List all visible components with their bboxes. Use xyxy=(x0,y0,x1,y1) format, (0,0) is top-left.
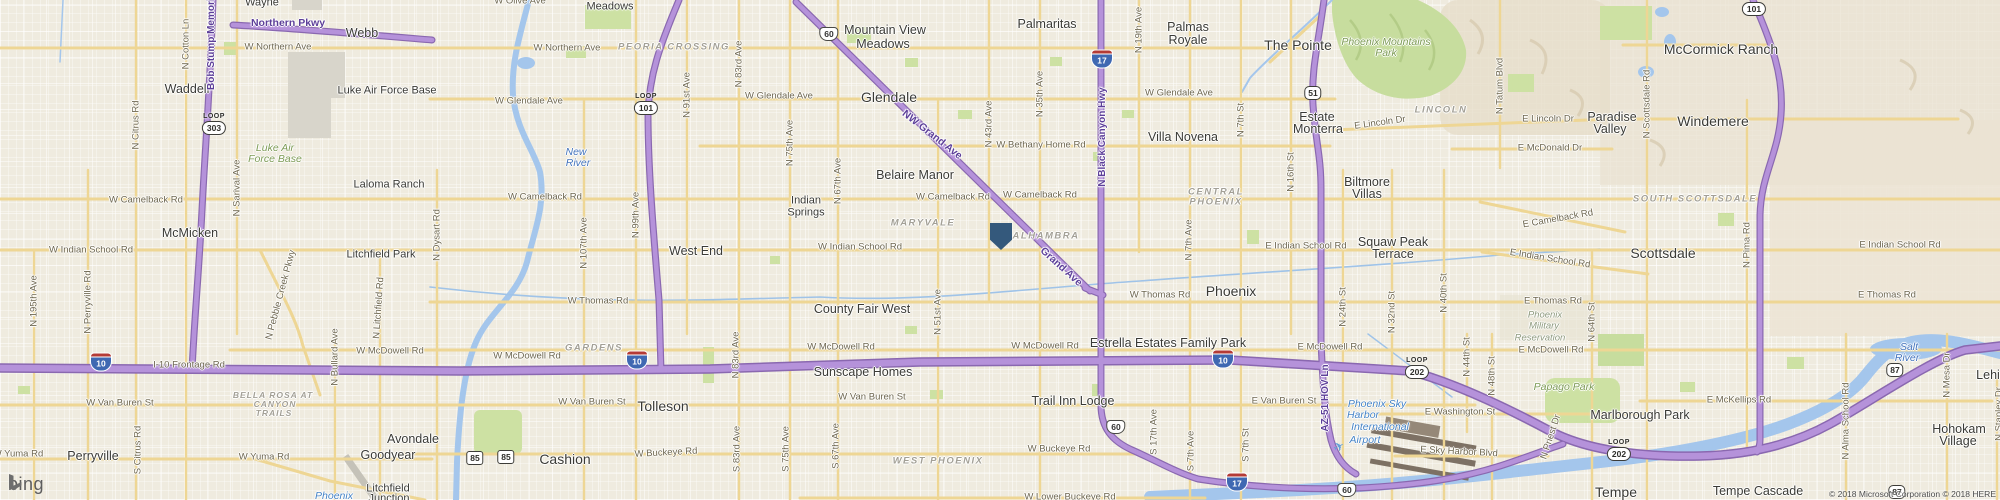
label-trail-inn-lodge: Trail Inn Lodge xyxy=(1032,395,1115,408)
label-luke-air-force-base: Luke Air Force Base xyxy=(337,86,436,97)
shield-i-10: 10 xyxy=(627,352,647,369)
label-military: Military xyxy=(1529,321,1559,331)
label-northern-pkwy: Northern Pkwy xyxy=(251,18,325,29)
label-w-indian-school-rd: W Indian School Rd xyxy=(49,245,133,255)
label-scottsdale: Scottsdale xyxy=(1630,246,1695,260)
label-phoenix-mountains: Phoenix Mountains xyxy=(1341,37,1430,48)
label-w-camelback-rd: W Camelback Rd xyxy=(1003,190,1077,200)
loop-shield-number: 101 xyxy=(1742,2,1766,16)
label-w-olive-ave: W Olive Ave xyxy=(494,0,546,6)
label-meadows: Meadows xyxy=(856,38,910,51)
label-s-7th-st: S 7th St xyxy=(1241,428,1251,462)
label-n-alma-school-rd: N Alma School Rd xyxy=(1841,382,1851,459)
label-e-indian-school-rd: E Indian School Rd xyxy=(1265,241,1346,251)
label-w-yuma-rd: W Yuma Rd xyxy=(239,452,290,462)
label-mountain-view: Mountain View xyxy=(844,24,926,37)
label-mccormick-ranch: McCormick Ranch xyxy=(1664,42,1778,56)
label-w-northern-ave: W Northern Ave xyxy=(534,43,601,53)
loop-shield-number: 202 xyxy=(1607,447,1631,461)
label-wayne: Wayne xyxy=(245,0,279,9)
label-n-48th-st: N 48th St xyxy=(1487,356,1497,396)
label-n-32nd-st: N 32nd St xyxy=(1387,291,1397,333)
label-junction: Junction xyxy=(369,494,410,500)
label-n-195th-ave: N 195th Ave xyxy=(29,275,39,327)
label-alhambra: ALHAMBRA xyxy=(1013,231,1080,241)
label-e-washington-st: E Washington St xyxy=(1425,407,1495,417)
label-n-75th-ave: N 75th Ave xyxy=(785,120,795,166)
label-e-van-buren-st: E Van Buren St xyxy=(1252,396,1317,406)
label-e-mckellips-rd: E McKellips Rd xyxy=(1707,395,1771,405)
label-n-tatum-blvd: N Tatum Blvd xyxy=(1495,58,1505,114)
label-n-107th-ave: N 107th Ave xyxy=(579,217,589,269)
map-attribution: © 2018 Microsoft Corporation © 2018 HERE xyxy=(1829,489,1996,499)
loop-shield-word: LOOP xyxy=(634,93,658,100)
shield-sr85-85: 85 xyxy=(466,451,483,465)
shield-loop-101: LOOP101 xyxy=(1742,0,1766,16)
label-n-19th-ave: N 19th Ave xyxy=(1134,7,1144,53)
label-n-64th-st: N 64th St xyxy=(1587,302,1597,342)
interstate-shield-number: 17 xyxy=(1227,478,1247,491)
label-airport: Airport xyxy=(1350,435,1381,446)
label-waddell: Waddell xyxy=(165,83,210,96)
bing-logo-icon xyxy=(8,474,23,493)
loop-shield-word: LOOP xyxy=(1607,439,1631,446)
label-river: River xyxy=(566,158,591,169)
label-n-7th-st: N 7th St xyxy=(1236,103,1246,137)
label-river: River xyxy=(1895,353,1920,364)
label-new: New xyxy=(565,147,586,158)
label-w-northern-ave: W Northern Ave xyxy=(245,42,312,52)
label-n-40th-st: N 40th St xyxy=(1439,273,1449,313)
shield-loop-101: LOOP101 xyxy=(634,93,658,115)
label-luke-air: Luke Air xyxy=(256,143,294,154)
label-w-mcdowell-rd: W McDowell Rd xyxy=(493,351,561,361)
label-w-van-buren-st: W Van Buren St xyxy=(838,392,905,402)
label-e-mcdowell-rd: E McDowell Rd xyxy=(1519,345,1584,355)
label-gardens: GARDENS xyxy=(565,343,623,353)
label-belaire-manor: Belaire Manor xyxy=(876,169,954,182)
label-the-pointe: The Pointe xyxy=(1264,38,1332,52)
label-windemere: Windemere xyxy=(1677,114,1749,128)
loop-shield-word: LOOP xyxy=(202,113,226,120)
label-w-van-buren-st: W Van Buren St xyxy=(558,397,625,407)
label-w-van-buren-st: W Van Buren St xyxy=(86,398,153,408)
bing-logo[interactable]: bing xyxy=(8,474,44,495)
label-w-camelback-rd: W Camelback Rd xyxy=(109,195,183,205)
label-n-black-canyon-hwy: N Black Canyon Hwy xyxy=(1098,87,1108,186)
label-w-yuma-rd: W Yuma Rd xyxy=(0,449,43,459)
interstate-shield-number: 10 xyxy=(91,358,111,371)
label-n-perryville-rd: N Perryville Rd xyxy=(83,270,93,333)
label-i-10-frontage-rd: I-10 Frontage Rd xyxy=(153,360,225,370)
label-n-cotton-ln: N Cotton Ln xyxy=(181,19,191,70)
interstate-shield-number: 17 xyxy=(1092,55,1112,68)
label-indian: Indian xyxy=(791,196,821,207)
label-phoenix: Phoenix xyxy=(315,491,353,500)
label-w-glendale-ave: W Glendale Ave xyxy=(745,91,813,101)
shield-i-10: 10 xyxy=(1213,351,1233,368)
label-n-citrus-rd: N Citrus Rd xyxy=(131,100,141,149)
label-w-mcdowell-rd: W McDowell Rd xyxy=(1011,341,1079,351)
label-n-51st-ave: N 51st Ave xyxy=(933,289,943,335)
label-perryville: Perryville xyxy=(67,450,118,463)
label-phoenix-sky: Phoenix Sky xyxy=(1348,399,1406,410)
label-w-mcdowell-rd: W McDowell Rd xyxy=(807,342,875,352)
label-lehi: Lehi xyxy=(1976,369,2000,382)
label-w-buckeye-rd: W Buckeye Rd xyxy=(1028,444,1091,454)
label-phoenix: Phoenix xyxy=(1206,284,1257,298)
label-s-17th-ave: S 17th Ave xyxy=(1149,409,1159,455)
label-s-citrus-rd: S Citrus Rd xyxy=(133,426,143,475)
label-cashion: Cashion xyxy=(539,452,590,466)
label-phoenix: Phoenix xyxy=(1528,310,1562,320)
shield-i-10: 10 xyxy=(91,354,111,371)
label-goodyear: Goodyear xyxy=(361,449,416,462)
label-west-phoenix: WEST PHOENIX xyxy=(893,456,984,466)
shield-i-17: 17 xyxy=(1227,474,1247,491)
label-tolleson: Tolleson xyxy=(637,399,688,413)
label-w-thomas-rd: W Thomas Rd xyxy=(1130,290,1191,300)
label-w-bethany-home-rd: W Bethany Home Rd xyxy=(996,140,1085,150)
label-trails: TRAILS xyxy=(256,409,293,418)
label-n-83rd-ave: N 83rd Ave xyxy=(731,332,741,379)
label-springs: Springs xyxy=(787,208,824,219)
label-royale: Royale xyxy=(1169,34,1208,47)
label-n-35th-ave: N 35th Ave xyxy=(1035,71,1045,117)
loop-shield-number: 303 xyxy=(202,121,226,135)
label-e-mcdonald-dr: E McDonald Dr xyxy=(1518,143,1582,153)
label-papago-park: Papago Park xyxy=(1534,382,1595,393)
label-e-mcdowell-rd: E McDowell Rd xyxy=(1298,342,1363,352)
label-n-91st-ave: N 91st Ave xyxy=(682,72,692,118)
label-sunscape-homes: Sunscape Homes xyxy=(814,366,913,379)
label-salt: Salt xyxy=(1900,342,1918,353)
label-w-lower-buckeye-rd: W Lower Buckeye Rd xyxy=(1024,492,1115,500)
label-n-mesa-dr: N Mesa Dr xyxy=(1942,352,1952,397)
label-w-camelback-rd: W Camelback Rd xyxy=(508,192,582,202)
label-international: International xyxy=(1351,422,1409,433)
label-reservation: Reservation xyxy=(1515,333,1566,343)
label-s-83rd-ave: S 83rd Ave xyxy=(732,426,742,472)
label-s-7th-ave: S 7th Ave xyxy=(1186,431,1196,472)
label-w-camelback-rd: W Camelback Rd xyxy=(916,192,990,202)
label-bob-stump-memorial: Bob Stump Memorial xyxy=(207,0,217,90)
label-e-thomas-rd: E Thomas Rd xyxy=(1858,290,1916,300)
label-s-75th-ave: S 75th Ave xyxy=(781,426,791,472)
label-meadows: Meadows xyxy=(586,2,633,13)
label-phoenix: PHOENIX xyxy=(1189,197,1242,207)
label-valley: Valley xyxy=(1593,123,1626,136)
label-w-indian-school-rd: W Indian School Rd xyxy=(818,242,902,252)
label-n-83rd-ave: N 83rd Ave xyxy=(734,41,744,88)
map-vector-layer xyxy=(0,0,2000,500)
label-harbor: Harbor xyxy=(1347,410,1379,421)
label-e-thomas-rd: E Thomas Rd xyxy=(1524,296,1582,306)
loop-shield-word: LOOP xyxy=(1405,357,1429,364)
label-e-indian-school-rd: E Indian School Rd xyxy=(1859,240,1940,250)
label-w-mcdowell-rd: W McDowell Rd xyxy=(356,346,424,356)
map-canvas[interactable]: WayneNorthern PkwyWebbW Northern AveW Ol… xyxy=(0,0,2000,500)
label-palmaritas: Palmaritas xyxy=(1017,18,1076,31)
label-tempe: Tempe xyxy=(1595,485,1637,499)
label-county-fair-west: County Fair West xyxy=(814,303,910,316)
label-az-51-hov-ln: AZ-51 HOV Ln xyxy=(1321,364,1331,431)
label-park: Park xyxy=(1375,48,1397,59)
label-n-67th-ave: N 67th Ave xyxy=(833,158,843,204)
label-villa-novena: Villa Novena xyxy=(1148,131,1218,144)
label-glendale: Glendale xyxy=(861,90,917,104)
shield-sr-51: 51 xyxy=(1304,86,1321,100)
label-mcmicken: McMicken xyxy=(162,227,218,240)
label-west-end: West End xyxy=(669,245,723,258)
label-n-bullard-ave: N Bullard Ave xyxy=(330,328,340,385)
label-force-base: Force Base xyxy=(248,154,302,165)
label-south-scottsdale: SOUTH SCOTTSDALE xyxy=(1633,194,1757,204)
interstate-shield-number: 10 xyxy=(627,356,647,369)
label-w-glendale-ave: W Glendale Ave xyxy=(495,96,563,106)
label-e-lincoln-dr: E Lincoln Dr xyxy=(1522,114,1574,124)
label-webb: Webb xyxy=(346,27,378,40)
label-monterra: Monterra xyxy=(1293,123,1343,136)
label-n-scottsdale-rd: N Scottsdale Rd xyxy=(1642,70,1652,139)
interstate-shield-number: 10 xyxy=(1213,355,1233,368)
label-n-24th-st: N 24th St xyxy=(1338,287,1348,327)
label-n-dysart-rd: N Dysart Rd xyxy=(432,209,442,261)
label-marlborough-park: Marlborough Park xyxy=(1590,409,1689,422)
shield-loop-303: LOOP303 xyxy=(202,113,226,135)
loop-shield-word: LOOP xyxy=(1742,0,1766,1)
label-estrella-estates-family-park: Estrella Estates Family Park xyxy=(1090,337,1246,350)
loop-shield-number: 101 xyxy=(634,101,658,115)
label-n-44th-st: N 44th St xyxy=(1462,337,1472,377)
label-laloma-ranch: Laloma Ranch xyxy=(354,180,425,191)
label-litchfield-park: Litchfield Park xyxy=(346,250,415,261)
label-palmas: Palmas xyxy=(1167,21,1209,34)
shield-i-17: 17 xyxy=(1092,51,1112,68)
label-n-sarival-ave: N Sarival Ave xyxy=(232,160,242,217)
label-peoria-crossing: PEORIA CROSSING xyxy=(618,42,730,52)
shield-sr-87: 87 xyxy=(1886,363,1903,377)
label-lincoln: LINCOLN xyxy=(1415,105,1468,115)
label-n-43rd-ave: N 43rd Ave xyxy=(984,101,994,148)
label-tempe-cascade: Tempe Cascade xyxy=(1713,485,1803,498)
label-n-7th-ave: N 7th Ave xyxy=(1184,219,1194,260)
label-avondale: Avondale xyxy=(387,433,439,446)
loop-shield-number: 202 xyxy=(1405,365,1429,379)
label-villas: Villas xyxy=(1352,188,1382,201)
label-maryvale: MARYVALE xyxy=(891,218,955,228)
label-n-16th-st: N 16th St xyxy=(1286,152,1296,192)
shield-loop-202: LOOP202 xyxy=(1405,357,1429,379)
label-w-thomas-rd: W Thomas Rd xyxy=(568,296,629,306)
label-n-pima-rd: N Pima Rd xyxy=(1742,222,1752,268)
label-terrace: Terrace xyxy=(1372,248,1414,261)
shield-loop-202: LOOP202 xyxy=(1607,439,1631,461)
label-village: Village xyxy=(1939,435,1976,448)
label-s-67th-ave: S 67th Ave xyxy=(831,423,841,469)
label-w-glendale-ave: W Glendale Ave xyxy=(1145,88,1213,98)
shield-sr85-85: 85 xyxy=(497,450,514,464)
label-n-stapley-dr: N Stapley Dr xyxy=(1994,387,2000,441)
label-n-99th-ave: N 99th Ave xyxy=(631,192,641,238)
